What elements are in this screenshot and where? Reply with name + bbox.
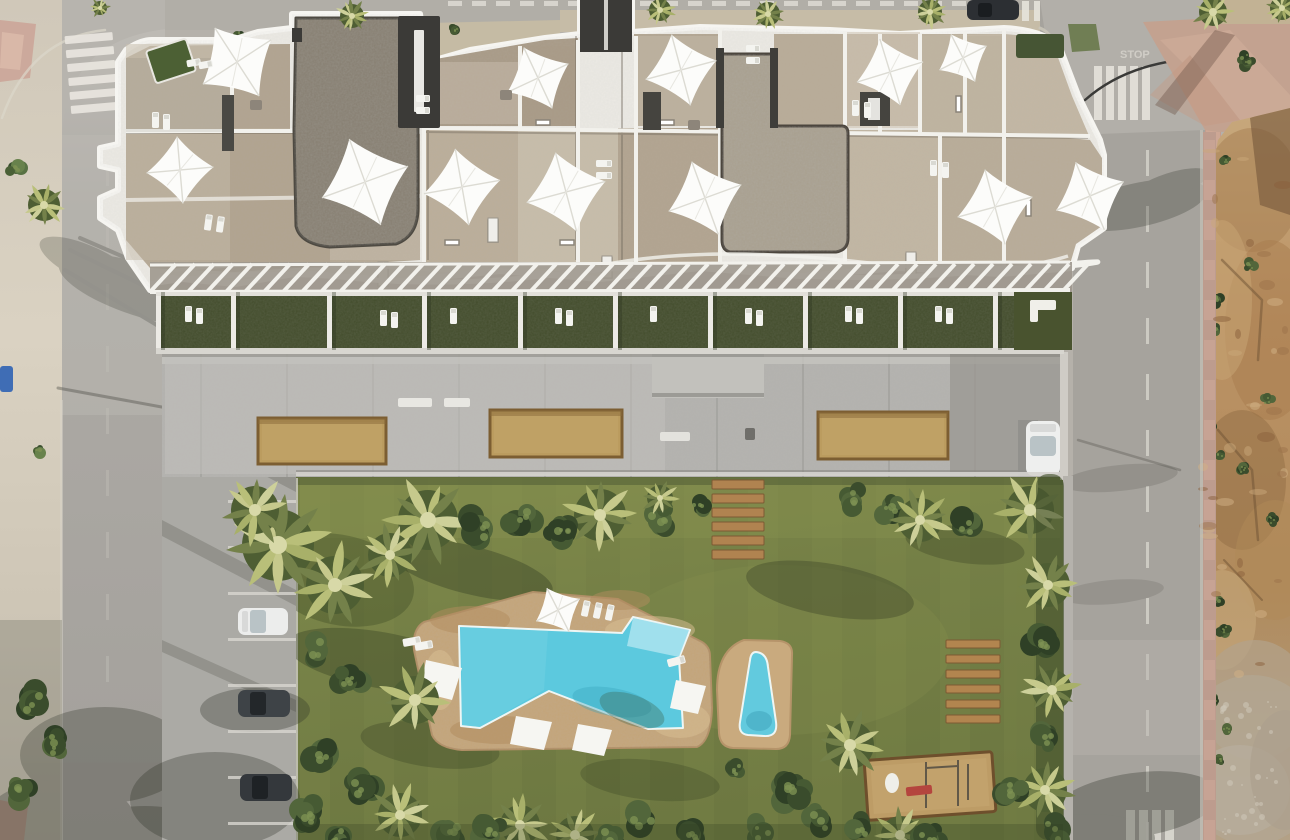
svg-text:STOP: STOP (1120, 49, 1150, 61)
